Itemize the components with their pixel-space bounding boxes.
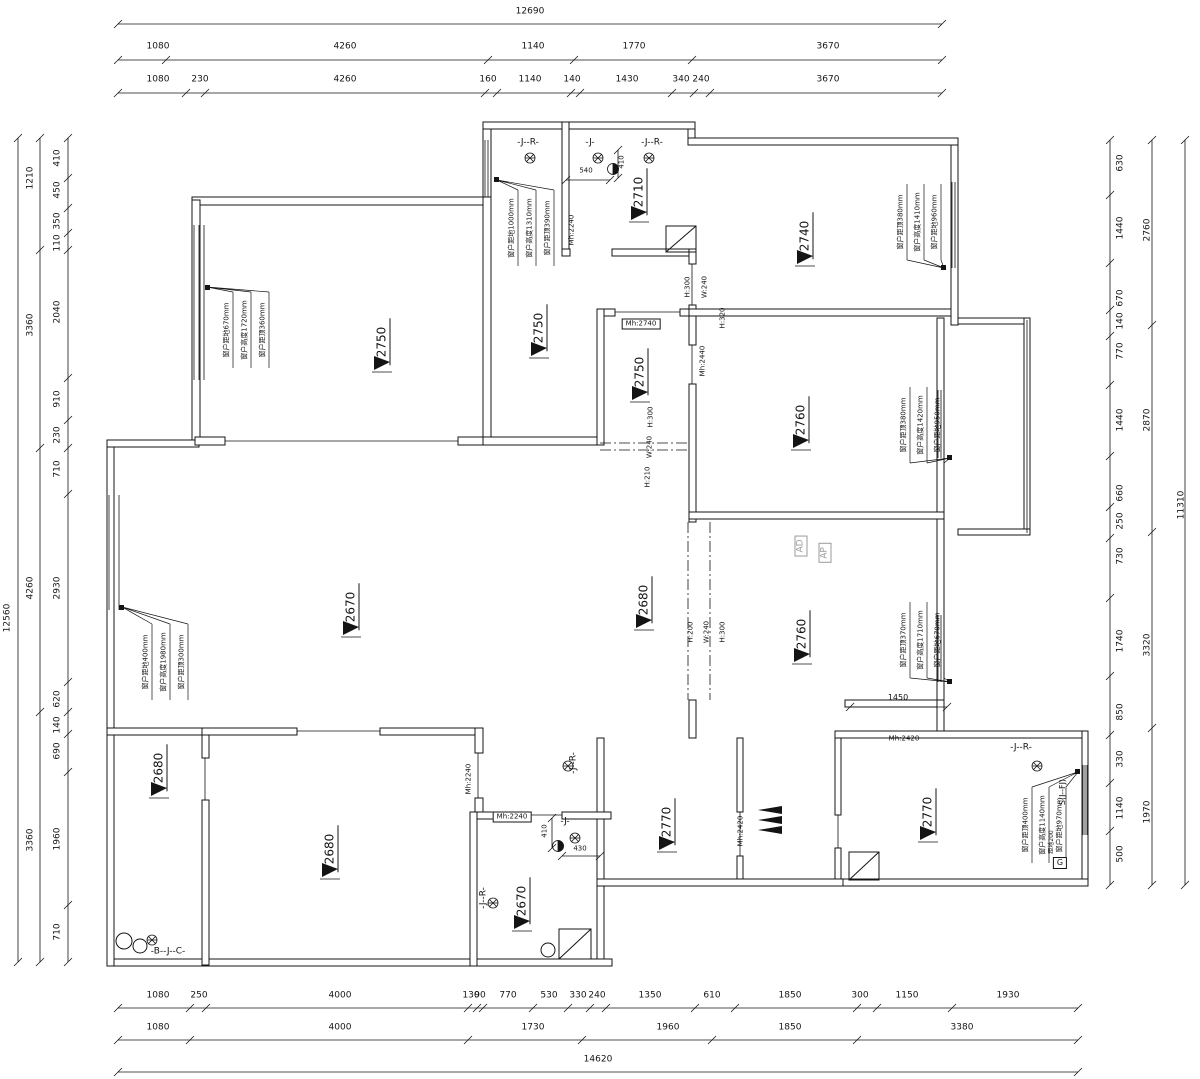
window-note: 窗户距地970mm <box>1057 798 1064 853</box>
dim-right: 850 <box>1117 703 1126 720</box>
dim-right: 1440 <box>1117 409 1126 432</box>
window-note: 窗户高度1310mm <box>527 198 534 257</box>
beam-note: W:240 <box>647 436 654 458</box>
dim-right: 330 <box>1117 750 1126 767</box>
plumbing-tag: -J--R- <box>641 139 663 148</box>
dim-bottom: 1080 <box>147 1024 170 1033</box>
dim-bottom: 90 <box>474 992 485 1001</box>
beam-note: H:300 <box>685 277 692 298</box>
door-height: Mh:2240 <box>569 215 576 246</box>
dim-top: 3670 <box>817 76 840 85</box>
plumbing-tag: -J--R- <box>570 752 579 774</box>
dim-bottom: 1080 <box>147 992 170 1001</box>
dim-bottom: 1350 <box>639 992 662 1001</box>
dim-small: 1450 <box>888 694 908 702</box>
window-note: 窗户距顶360mm <box>260 303 267 358</box>
dim-top: 3670 <box>817 43 840 52</box>
dim-bottom: 530 <box>540 992 557 1001</box>
dim-top: 140 <box>563 76 580 85</box>
dim-top: 1080 <box>147 43 170 52</box>
dim-right: 140 <box>1117 312 1126 329</box>
dim-left: 910 <box>54 390 63 407</box>
ceiling-elevation: 2680 <box>638 577 653 624</box>
dim-bottom: 1960 <box>657 1024 680 1033</box>
window-note: 窗户高度1420mm <box>918 395 925 454</box>
dim-right: 2760 <box>1144 219 1153 242</box>
beam-note: H:300 <box>720 622 727 643</box>
plumbing-tag: -J--R- <box>517 139 539 148</box>
dim-left: 1210 <box>27 167 36 190</box>
ceiling-elevation: 2670 <box>345 584 360 631</box>
dim-bottom: 610 <box>703 992 720 1001</box>
dim-top: 1770 <box>623 43 646 52</box>
dim-bottom: 1930 <box>997 992 1020 1001</box>
dim-bottom: 330 <box>569 992 586 1001</box>
door-height: Mh:2440 <box>700 346 707 377</box>
window-note: 窗户高度1720mm <box>242 300 249 359</box>
dim-left: 110 <box>54 234 63 251</box>
ceiling-elevation: 2770 <box>922 789 937 836</box>
dim-top: 1080 <box>147 76 170 85</box>
beam-note: H:200 <box>688 622 695 643</box>
ceiling-elevation: 2740 <box>799 213 814 260</box>
ceiling-elevation: 2760 <box>796 611 811 658</box>
dim-left: 3360 <box>27 314 36 337</box>
dim-bottom: 250 <box>190 992 207 1001</box>
window-note: 窗户高度1140mm <box>1040 795 1047 854</box>
dim-small: 410 <box>542 824 549 837</box>
plumbing-tag: -J- <box>560 818 569 827</box>
dim-left: 4260 <box>27 577 36 600</box>
dim-left: 140 <box>54 716 63 733</box>
dim-right: 1140 <box>1117 797 1126 820</box>
door-height: Mh:2240 <box>466 764 473 795</box>
ceiling-elevation: 2750 <box>376 319 391 366</box>
door-height: Mh:2420 <box>889 736 920 743</box>
window-note: 窗户距顶300mm <box>179 635 186 690</box>
window-note: 窗户距地670mm <box>224 303 231 358</box>
beam-note: W:240 <box>704 621 711 643</box>
dim-right-overall: 11310 <box>1178 491 1187 520</box>
dim-left: 410 <box>54 149 63 166</box>
dim-bottom: 1850 <box>779 1024 802 1033</box>
dim-small: 540 <box>579 168 592 175</box>
dim-top-overall: 12690 <box>516 8 545 17</box>
dim-right: 1740 <box>1117 630 1126 653</box>
dim-top: 1140 <box>519 76 542 85</box>
dim-right: 2870 <box>1144 409 1153 432</box>
dim-top: 160 <box>479 76 496 85</box>
door-height: Mh:2740 <box>622 319 661 330</box>
dim-bottom-overall: 14620 <box>584 1056 613 1065</box>
dim-top: 340 <box>672 76 689 85</box>
dim-right: 500 <box>1117 845 1126 862</box>
door-height: Mh:2420 <box>738 816 745 847</box>
ceiling-elevation: 2750 <box>634 349 649 396</box>
window-note: 窗户高度1980mm <box>161 632 168 691</box>
window-note: 窗户高度1710mm <box>918 610 925 669</box>
dim-small: 430 <box>573 846 586 853</box>
dim-left: 620 <box>54 690 63 707</box>
dim-bottom: 3380 <box>951 1024 974 1033</box>
dim-right: 1970 <box>1144 801 1153 824</box>
dim-bottom: 4000 <box>329 1024 352 1033</box>
dim-bottom: 4000 <box>329 992 352 1001</box>
dim-top: 230 <box>191 76 208 85</box>
dim-top: 1140 <box>522 43 545 52</box>
dim-top: 1430 <box>616 76 639 85</box>
dim-bottom: 240 <box>588 992 605 1001</box>
window-note: 窗户距地950mm <box>935 398 942 453</box>
window-note: 窗户距地1000mm <box>509 198 516 257</box>
dim-left: 350 <box>54 212 63 229</box>
plumbing-tag: -B--J--C- <box>151 948 185 957</box>
window-note: 窗户距顶390mm <box>545 201 552 256</box>
ceiling-elevation: 2680 <box>324 826 339 873</box>
dim-top: 4260 <box>334 76 357 85</box>
dim-left: 450 <box>54 181 63 198</box>
dim-right: 770 <box>1117 342 1126 359</box>
ceiling-elevation: 2750 <box>533 305 548 352</box>
dim-right: 1440 <box>1117 217 1126 240</box>
window-note: 窗户距地960mm <box>932 195 939 250</box>
dim-left: 690 <box>54 742 63 759</box>
dim-top: 4260 <box>334 43 357 52</box>
ceiling-elevation: 2680 <box>153 745 168 792</box>
beam-note: H:300 <box>648 407 655 428</box>
window-note: 窗户距顶380mm <box>901 398 908 453</box>
window-note: 窗户距地400mm <box>143 635 150 690</box>
floor-plan: 1269010804260114017703670108023042601601… <box>0 0 1200 1079</box>
dim-small: 410 <box>619 155 626 168</box>
window-note: 窗户距顶370mm <box>901 613 908 668</box>
window-note: 窗户距顶380mm <box>898 195 905 250</box>
dim-left: 1960 <box>54 828 63 851</box>
gas-note: 距地200 <box>1049 830 1055 853</box>
dim-left: 2040 <box>54 301 63 324</box>
dim-top: 240 <box>692 76 709 85</box>
window-note: 窗户高度1410mm <box>915 192 922 251</box>
ceiling-elevation: 2770 <box>661 799 676 846</box>
air-duct-tag: AP <box>819 543 832 563</box>
dim-bottom: 300 <box>851 992 868 1001</box>
ceiling-elevation: 2760 <box>795 397 810 444</box>
dim-bottom: 770 <box>499 992 516 1001</box>
dim-left: 710 <box>54 923 63 940</box>
beam-note: H:210 <box>645 467 652 488</box>
air-duct-tag: AD <box>795 535 808 556</box>
dim-right: 250 <box>1117 512 1126 529</box>
label-layer: 1269010804260114017703670108023042601601… <box>0 0 1200 1079</box>
ceiling-elevation: 2710 <box>633 169 648 216</box>
dim-right: 730 <box>1117 547 1126 564</box>
dim-bottom: 1730 <box>522 1024 545 1033</box>
dim-left: 710 <box>54 460 63 477</box>
dim-right: 3320 <box>1144 634 1153 657</box>
gas-meter-tag: G <box>1053 857 1067 869</box>
window-note: 窗户距地670mm <box>935 613 942 668</box>
dim-left: 3360 <box>27 829 36 852</box>
ceiling-elevation: 2670 <box>516 878 531 925</box>
plumbing-tag: -J--R- <box>480 887 489 909</box>
dim-bottom: 1850 <box>779 992 802 1001</box>
beam-note: W:240 <box>702 276 709 298</box>
dim-right: 670 <box>1117 289 1126 306</box>
beam-note: H:320 <box>720 308 727 329</box>
dim-right: 660 <box>1117 484 1126 501</box>
window-note: 窗户距顶400mm <box>1023 798 1030 853</box>
dim-bottom: 1150 <box>896 992 919 1001</box>
door-height: Mh:2240 <box>493 812 532 823</box>
dim-right: 630 <box>1117 154 1126 171</box>
plumbing-tag: -J- <box>585 139 594 148</box>
dim-left: 2930 <box>54 577 63 600</box>
dim-left-overall: 12560 <box>4 604 13 633</box>
plumbing-tag: -J--R- <box>1010 744 1032 753</box>
stack-tag: S(J--FJ) <box>1059 779 1067 805</box>
dim-left: 230 <box>54 426 63 443</box>
